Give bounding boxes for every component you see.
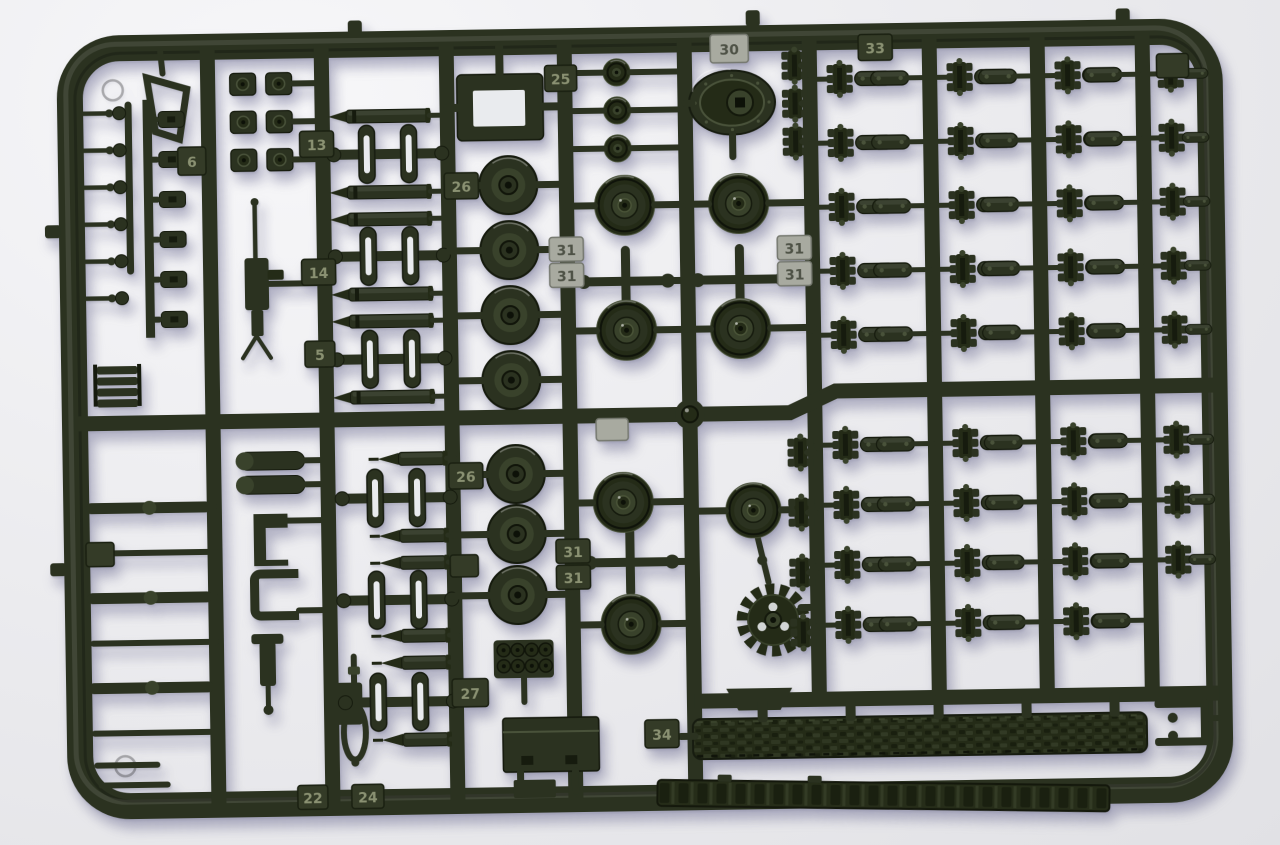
ammo-round bbox=[332, 389, 434, 406]
part-number-tab-22: 22 bbox=[298, 785, 328, 809]
frame-nub bbox=[348, 20, 362, 34]
runner-junction-node-center bbox=[682, 406, 698, 422]
track-pad-link bbox=[877, 497, 915, 512]
vision-block bbox=[230, 73, 256, 95]
track-pad-link bbox=[1185, 324, 1212, 334]
part-number-tab-24: 24 bbox=[352, 784, 384, 808]
runner-vertical-7 bbox=[929, 35, 939, 697]
track-link-cluster bbox=[1058, 312, 1085, 350]
paired-link-part bbox=[335, 468, 458, 528]
cylinder-parts bbox=[235, 451, 321, 494]
sprue-gate-stub bbox=[769, 202, 812, 203]
small-box-part bbox=[514, 779, 556, 798]
ap-ammo-round bbox=[371, 628, 450, 644]
sprue-gate-stub bbox=[565, 111, 604, 112]
part-number: 31 bbox=[784, 241, 804, 257]
vision-block bbox=[230, 111, 256, 133]
track-link-cluster bbox=[1063, 602, 1090, 640]
assembled-track-run bbox=[681, 712, 1148, 759]
bracket-part bbox=[161, 271, 187, 287]
part-number: 31 bbox=[563, 545, 583, 561]
sprue-gate-stub bbox=[661, 623, 693, 624]
bracket-part bbox=[161, 311, 187, 327]
part-number: 22 bbox=[303, 791, 323, 807]
track-pad-link bbox=[1188, 494, 1215, 504]
track-link-cluster bbox=[826, 60, 853, 98]
vision-block bbox=[266, 73, 292, 95]
faucet-bracket-part bbox=[251, 634, 284, 715]
track-link-cluster bbox=[829, 252, 856, 290]
track-pad-link bbox=[1189, 554, 1216, 564]
part-number-tab-14: 14 bbox=[301, 259, 335, 286]
suspension-rod bbox=[93, 642, 207, 644]
grille-side bbox=[137, 364, 142, 406]
part-number-tab-31: 31 bbox=[556, 565, 590, 590]
sprue-gate-stub bbox=[654, 501, 691, 502]
part-number: 31 bbox=[785, 267, 805, 283]
grab-handle-pin bbox=[85, 255, 128, 269]
track-pad-link bbox=[981, 197, 1019, 212]
track-pad-link bbox=[1090, 493, 1128, 508]
track-link-cluster bbox=[947, 122, 974, 160]
part-number: 5 bbox=[315, 348, 325, 364]
grab-handle-pin bbox=[85, 218, 128, 232]
track-pad-link bbox=[1183, 196, 1210, 206]
part-number: 26 bbox=[451, 180, 471, 196]
track-link-cluster bbox=[828, 188, 855, 226]
track-link-cluster bbox=[1055, 120, 1082, 158]
vision-block bbox=[266, 111, 292, 133]
sprue-gate-stub bbox=[630, 71, 678, 72]
part-number: 6 bbox=[187, 155, 197, 171]
part-number: 31 bbox=[564, 571, 584, 587]
track-pad-link bbox=[1182, 132, 1209, 142]
frame-shaped-part bbox=[147, 77, 188, 140]
ap-ammo-round bbox=[370, 528, 449, 544]
runner-vertical-9 bbox=[1142, 32, 1152, 694]
paired-link-part bbox=[326, 124, 449, 184]
sprue-gate-stub bbox=[657, 329, 689, 330]
mini-rail-runner bbox=[147, 100, 151, 338]
sprue-gate-stub bbox=[160, 52, 162, 74]
hatch-frame-part bbox=[446, 45, 565, 141]
sprue-gate-stub bbox=[454, 534, 489, 535]
track-link-cluster bbox=[1060, 422, 1087, 460]
bracket-part bbox=[160, 231, 186, 247]
sprue-gate-stub bbox=[691, 511, 725, 512]
bracket-part bbox=[159, 191, 185, 207]
part-number: 14 bbox=[309, 266, 329, 282]
blank-tab bbox=[450, 555, 478, 577]
track-link-cluster bbox=[827, 124, 854, 162]
sprue-gate-stub bbox=[455, 595, 490, 596]
part-number-tab-31: 31 bbox=[556, 539, 590, 564]
track-pad-link bbox=[1184, 260, 1211, 270]
part-number: 26 bbox=[456, 470, 476, 486]
suspension-rod bbox=[97, 765, 157, 766]
track-pad-link bbox=[983, 325, 1021, 340]
track-link-cluster bbox=[1057, 248, 1084, 286]
frame-nub bbox=[1116, 8, 1130, 22]
track-connector-post bbox=[845, 697, 855, 721]
sprue-tree: 30 25 33 6 13 14 5 26 31 31 31 bbox=[42, 3, 1222, 828]
part-number: 34 bbox=[652, 728, 672, 744]
track-pad-link bbox=[1091, 553, 1129, 568]
ammo-round bbox=[331, 286, 433, 303]
suspension-rod bbox=[102, 785, 168, 786]
track-pad-link bbox=[1084, 67, 1122, 82]
ammo-round bbox=[328, 108, 430, 125]
sprue-gate-stub bbox=[771, 327, 814, 328]
bracket-part bbox=[158, 111, 184, 127]
grille-slat bbox=[97, 377, 137, 386]
ap-ammo-round bbox=[368, 451, 447, 467]
grab-handle-pin bbox=[84, 144, 127, 158]
ammo-round bbox=[329, 184, 431, 201]
track-pad-link bbox=[1089, 433, 1127, 448]
blank-tab bbox=[596, 418, 628, 440]
grille-slat bbox=[97, 388, 137, 397]
track-connector-post bbox=[1109, 693, 1119, 717]
suspension-rod bbox=[95, 732, 209, 734]
part-number-tab-30: 30 bbox=[710, 34, 748, 63]
runner-vertical-8 bbox=[1037, 34, 1047, 696]
track-link-cluster bbox=[832, 426, 859, 464]
paired-link-part bbox=[330, 329, 453, 389]
grille-slat bbox=[97, 366, 137, 375]
track-link-cluster bbox=[1062, 542, 1089, 580]
part-number-tab-5: 5 bbox=[305, 341, 335, 367]
track-pad-link bbox=[1086, 195, 1124, 210]
track-link-cluster bbox=[949, 250, 976, 288]
sprue-gate-stub bbox=[631, 147, 679, 148]
blank-tab bbox=[86, 542, 114, 566]
ejector-pin-mark bbox=[103, 80, 123, 100]
runner-vertical-6 bbox=[809, 37, 819, 699]
track-link-cluster bbox=[1054, 56, 1081, 94]
sprue-gate-stub bbox=[630, 109, 678, 110]
track-pad-link bbox=[871, 71, 909, 86]
part-number-tab-31: 31 bbox=[549, 237, 583, 262]
part-number-tab-31: 31 bbox=[778, 261, 812, 286]
track-connector-post bbox=[933, 695, 943, 719]
grab-handle-pin bbox=[86, 292, 129, 306]
track-pad-link bbox=[980, 133, 1018, 148]
sprue-photo: 30 25 33 6 13 14 5 26 31 31 31 bbox=[0, 0, 1280, 845]
track-link-cluster bbox=[834, 546, 861, 584]
bracket-cluster bbox=[253, 513, 322, 566]
thin-rod-part bbox=[128, 105, 131, 271]
track-link-cluster bbox=[946, 58, 973, 96]
grille-slat bbox=[98, 399, 138, 408]
part-number-tab-31: 31 bbox=[777, 235, 811, 260]
track-link-cluster bbox=[948, 186, 975, 224]
part-number: 13 bbox=[307, 138, 327, 154]
grille-side bbox=[93, 365, 98, 407]
track-pad-link bbox=[986, 555, 1024, 570]
track-pad-link bbox=[1087, 259, 1125, 274]
track-link-cluster bbox=[830, 316, 857, 354]
track-connector-post bbox=[1021, 694, 1031, 718]
track-pad-link bbox=[874, 263, 912, 278]
sprue-gate-stub bbox=[450, 316, 482, 317]
part-number: 27 bbox=[460, 687, 480, 703]
part-number-tab-26: 26 bbox=[449, 463, 483, 490]
sprue-gate-stub bbox=[451, 381, 483, 382]
track-pad-link bbox=[875, 327, 913, 342]
track-pad-link bbox=[879, 617, 917, 632]
part-number-tab-26: 26 bbox=[444, 173, 478, 200]
track-connector-post bbox=[757, 698, 767, 722]
part-number-tab-34: 34 bbox=[645, 720, 679, 749]
track-link-cluster bbox=[833, 486, 860, 524]
track-pad-link bbox=[1187, 434, 1214, 444]
track-pad-link bbox=[987, 615, 1025, 630]
part-number: 31 bbox=[557, 269, 577, 285]
part-number-tab-6: 6 bbox=[178, 147, 206, 175]
track-pad-link bbox=[985, 495, 1023, 510]
ap-ammo-round bbox=[373, 732, 452, 748]
ap-ammo-round bbox=[370, 555, 449, 571]
vision-block bbox=[231, 149, 257, 171]
paired-link-part bbox=[336, 570, 459, 630]
track-pad-link bbox=[1092, 613, 1130, 628]
frame-nub bbox=[746, 10, 760, 26]
part-number: 25 bbox=[551, 72, 571, 88]
track-link-cluster bbox=[952, 424, 979, 462]
vision-block bbox=[267, 149, 293, 171]
track-pad-link bbox=[872, 135, 910, 150]
part-number: 30 bbox=[719, 42, 739, 58]
ap-ammo-round bbox=[372, 655, 451, 671]
track-link-cluster bbox=[1056, 184, 1083, 222]
part-number: 33 bbox=[865, 41, 885, 57]
part-number: 24 bbox=[358, 790, 378, 806]
frame-nub bbox=[50, 563, 66, 576]
track-pad-link bbox=[1088, 323, 1126, 338]
grab-handle-pin bbox=[83, 107, 126, 121]
track-link-cluster bbox=[955, 604, 982, 642]
paired-link-part bbox=[328, 226, 451, 286]
part-number-tab-33: 33 bbox=[858, 34, 892, 61]
part-number-tab-31: 31 bbox=[550, 263, 584, 288]
sprue-gate-stub bbox=[449, 251, 481, 252]
track-pad-link bbox=[982, 261, 1020, 276]
track-link-cluster bbox=[1061, 482, 1088, 520]
blank-tab bbox=[1156, 53, 1188, 77]
track-link-cluster bbox=[835, 606, 862, 644]
track-pad-link bbox=[873, 199, 911, 214]
part-number-tab-27: 27 bbox=[452, 678, 488, 707]
sprue-gate-stub bbox=[566, 149, 605, 150]
track-link-cluster bbox=[950, 314, 977, 352]
track-link-cluster bbox=[954, 544, 981, 582]
ammo-round bbox=[331, 313, 433, 330]
grab-handle-pin bbox=[84, 181, 127, 195]
track-link-cluster bbox=[953, 484, 980, 522]
track-pad-link bbox=[878, 557, 916, 572]
track-pad-link bbox=[984, 435, 1022, 450]
part-number-tab-25: 25 bbox=[544, 65, 576, 91]
part-number: 31 bbox=[556, 243, 576, 259]
part-number-tab-13: 13 bbox=[299, 131, 333, 158]
track-pad-link bbox=[979, 69, 1017, 84]
track-pad-link bbox=[876, 437, 914, 452]
ammo-round bbox=[330, 211, 432, 228]
u-clamp-part bbox=[254, 573, 299, 616]
track-pad-link bbox=[1085, 131, 1123, 146]
frame-nub bbox=[45, 225, 61, 238]
sprue-gate-stub bbox=[655, 204, 687, 205]
